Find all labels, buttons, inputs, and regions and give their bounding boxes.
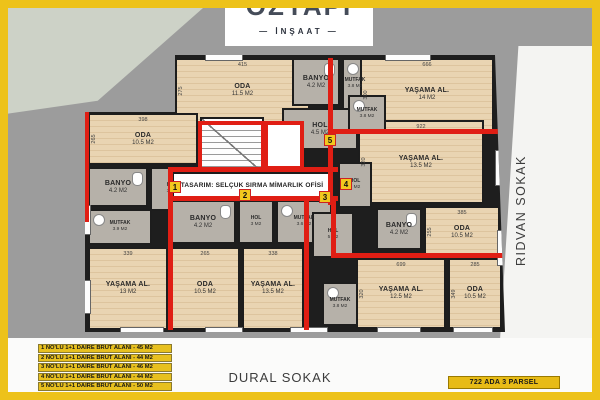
dimension-label: 339: [123, 251, 132, 257]
room-yasama-bottomright: 699 320 YAŞAMA AL.12.5 M2: [356, 258, 446, 329]
room-area: 4.2 M2: [386, 230, 412, 237]
room-banyo-left: BANYO4.2 M2: [88, 167, 148, 207]
dimension-label: 320: [359, 289, 365, 298]
legend-item: 3 NO'LU 1+1 DAIRE BRUT ALANI - 46 M2: [38, 363, 172, 372]
dimension-label: 265: [200, 251, 209, 257]
room-hol-mid: HOL3 M2: [238, 200, 274, 244]
unit-marker-2: 2: [239, 189, 251, 201]
room-name: YAŞAMA AL.: [106, 281, 150, 289]
window: [453, 327, 493, 334]
dimension-label: 398: [138, 117, 147, 123]
dimension-label: 415: [238, 62, 247, 68]
room-name: ODA: [132, 132, 154, 140]
room-area: 3.8 M2: [345, 84, 366, 90]
room-mutfak-right: MUTFAK3.8 M2: [348, 95, 386, 133]
core-wall: [198, 121, 265, 172]
room-name: HOL: [311, 122, 329, 130]
room-area: 10.5 M2: [194, 289, 216, 296]
room-area: 10.5 M2: [132, 140, 154, 147]
sheet-background: 415 275 ODA11.5 M2 BANYO4.2 M2 MUTFAK3.8…: [8, 8, 592, 392]
room-name: BANYO: [190, 215, 216, 223]
room-name: ODA: [451, 225, 473, 233]
dimension-label: 385: [457, 210, 466, 216]
legend-item: 1 NO'LU 1+1 DAIRE BRUT ALANI - 45 M2: [38, 344, 172, 353]
dimension-label: 349: [451, 289, 457, 298]
unit-marker-4: 4: [340, 178, 352, 190]
room-oda-bottomright: 285 349 ODA10.5 M2: [448, 258, 502, 329]
room-mutfak-bottomright: MUTFAK3.8 M2: [322, 282, 358, 326]
room-area: 10.5 M2: [451, 233, 473, 240]
room-oda-rightmid: 385 255 ODA10.5 M2: [424, 206, 500, 258]
legend-item: 4 NO'LU 1+1 DAIRE BRUT ALANI - 44 M2: [38, 373, 172, 382]
window: [290, 327, 328, 334]
unit-wall: [168, 196, 338, 201]
dimension-label: 338: [268, 251, 277, 257]
room-banyo-mid: BANYO4.2 M2: [170, 200, 236, 244]
window: [497, 230, 504, 266]
unit-marker-1: 1: [169, 181, 181, 193]
legend-item: 5 NO'LU 1+1 DAIRE BRUT ALANI - 50 M2: [38, 382, 172, 391]
room-area: 12.5 M2: [379, 294, 423, 301]
dimension-label: 285: [470, 262, 479, 268]
unit-area-legend: 1 NO'LU 1+1 DAIRE BRUT ALANI - 45 M2 2 N…: [38, 344, 172, 392]
room-name: ODA: [464, 286, 486, 294]
window: [205, 54, 243, 61]
room-area: 13 M2: [106, 289, 150, 296]
unit-wall: [304, 196, 309, 330]
dimension-label: 265: [91, 134, 97, 143]
room-area: 11.5 M2: [232, 91, 253, 98]
unit-marker-5: 5: [324, 134, 336, 146]
room-area: 10.5 M2: [464, 294, 486, 301]
room-name: YAŞAMA AL.: [379, 286, 423, 294]
company-logo: ÖZYAPI — İNŞAAT —: [225, 8, 373, 46]
room-name: BANYO: [105, 180, 131, 188]
dimension-label: 275: [178, 86, 184, 95]
room-area: 3.8 M2: [330, 304, 351, 310]
company-subtitle: — İNŞAAT —: [225, 27, 373, 36]
unit-wall: [331, 196, 336, 258]
room-mutfak-left: MUTFAK3.9 M2: [88, 209, 152, 245]
unit-wall: [85, 112, 89, 222]
street-label-ridvan: RIDVAN SOKAK: [514, 86, 528, 266]
room-area: 3.8 M2: [357, 114, 378, 120]
room-area: 4.2 M2: [303, 83, 329, 90]
dimension-label: 666: [422, 62, 431, 68]
room-yasama-bottomleft: 339 YAŞAMA AL.13 M2: [88, 247, 168, 330]
room-yasama-bottommid: 338 YAŞAMA AL.13.5 M2: [242, 247, 304, 330]
unit-marker-3: 3: [319, 191, 331, 203]
room-area: 13.5 M2: [251, 289, 295, 296]
window: [377, 327, 421, 334]
room-area: 13.5 M2: [399, 163, 443, 170]
window: [495, 150, 502, 186]
room-name: ODA: [194, 281, 216, 289]
dimension-label: 255: [427, 227, 433, 236]
company-name-clipped: ÖZYAPI: [225, 8, 373, 23]
dimension-label: 300: [363, 90, 369, 99]
room-name: YAŞAMA AL.: [405, 87, 449, 95]
company-name: ÖZYAPI: [246, 8, 352, 22]
window: [84, 280, 91, 314]
room-name: YAŞAMA AL.: [251, 281, 295, 289]
unit-wall: [328, 129, 500, 134]
elevator-shaft: [264, 121, 304, 170]
room-name: BANYO: [303, 75, 329, 83]
room-name: ODA: [232, 83, 253, 91]
legend-item: 2 NO'LU 1+1 DAIRE BRUT ALANI - 44 M2: [38, 354, 172, 363]
window: [385, 54, 431, 61]
room-area: 4.2 M2: [190, 223, 216, 230]
window: [205, 327, 243, 334]
room-area: 3 M2: [251, 222, 262, 228]
room-name: YAŞAMA AL.: [399, 155, 443, 163]
dimension-label: 699: [396, 262, 405, 268]
room-area: 14 M2: [405, 95, 449, 102]
dimension-label: 320: [361, 157, 367, 166]
room-oda-bottomleft: 265 ODA10.5 M2: [170, 247, 240, 330]
street-label-dural: DURAL SOKAK: [200, 370, 360, 385]
parcel-badge: 722 ADA 3 PARSEL: [448, 376, 560, 389]
window: [120, 327, 164, 334]
room-oda-leftmid: 398 265 ODA10.5 M2: [88, 113, 198, 165]
room-area: 4.2 M2: [105, 188, 131, 195]
unit-wall: [331, 253, 503, 258]
drawing-sheet: 415 275 ODA11.5 M2 BANYO4.2 M2 MUTFAK3.8…: [0, 0, 600, 400]
room-banyo-right: BANYO4.2 M2: [376, 208, 422, 250]
floor-plan: 415 275 ODA11.5 M2 BANYO4.2 M2 MUTFAK3.8…: [85, 55, 505, 335]
room-area: 3.9 M2: [110, 227, 131, 233]
room-name: BANYO: [386, 222, 412, 230]
design-credit: TASARIM: SELÇUK SIRMA MİMARLIK OFİSİ: [172, 172, 332, 198]
